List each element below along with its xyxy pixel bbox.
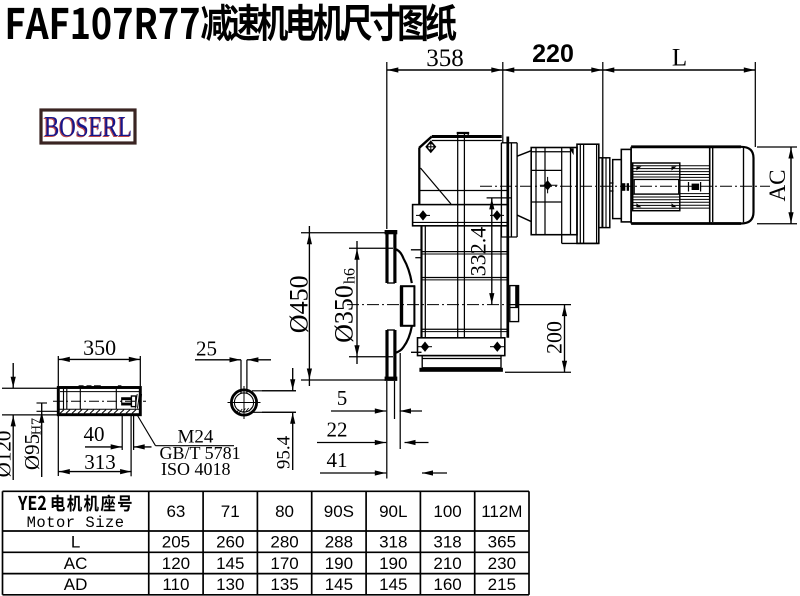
svg-text:25: 25	[196, 337, 217, 361]
svg-text:95.4: 95.4	[273, 435, 294, 469]
svg-text:AC: AC	[765, 170, 790, 202]
svg-text:22: 22	[327, 418, 348, 442]
svg-text:Motor Size: Motor Size	[27, 514, 125, 532]
svg-text:365: 365	[488, 533, 516, 552]
svg-text:280: 280	[270, 533, 298, 552]
svg-text:H7: H7	[30, 418, 45, 435]
svg-text:Ø450: Ø450	[285, 275, 314, 333]
svg-text:90L: 90L	[379, 502, 407, 521]
svg-text:Ø95: Ø95	[20, 434, 44, 470]
svg-text:358: 358	[426, 45, 464, 72]
svg-text:205: 205	[162, 533, 190, 552]
svg-text:112M: 112M	[481, 502, 522, 521]
svg-text:318: 318	[433, 533, 461, 552]
svg-text:350: 350	[83, 335, 116, 360]
svg-text:L: L	[71, 533, 80, 552]
svg-text:145: 145	[216, 554, 244, 573]
svg-text:63: 63	[166, 502, 185, 521]
svg-text:135: 135	[270, 575, 298, 594]
svg-text:318: 318	[379, 533, 407, 552]
svg-text:5: 5	[337, 386, 348, 410]
svg-text:80: 80	[275, 502, 294, 521]
svg-text:145: 145	[325, 575, 353, 594]
svg-text:90S: 90S	[324, 502, 354, 521]
svg-text:313: 313	[84, 450, 116, 474]
svg-text:215: 215	[488, 575, 516, 594]
svg-text:260: 260	[216, 533, 244, 552]
svg-text:AC: AC	[64, 554, 88, 573]
svg-text:41: 41	[327, 448, 348, 472]
svg-text:200: 200	[541, 321, 566, 354]
svg-text:230: 230	[488, 554, 516, 573]
svg-text:BOSERL: BOSERL	[44, 111, 132, 143]
svg-text:210: 210	[433, 554, 461, 573]
svg-text:120: 120	[162, 554, 190, 573]
svg-text:h6: h6	[341, 268, 358, 284]
svg-text:L: L	[672, 45, 687, 72]
svg-text:190: 190	[325, 554, 353, 573]
svg-text:170: 170	[270, 554, 298, 573]
svg-text:130: 130	[216, 575, 244, 594]
svg-text:100: 100	[433, 502, 461, 521]
svg-text:190: 190	[379, 554, 407, 573]
svg-text:145: 145	[379, 575, 407, 594]
svg-text:AD: AD	[64, 575, 88, 594]
svg-text:220: 220	[532, 40, 574, 68]
svg-text:Ø350: Ø350	[329, 285, 358, 343]
svg-text:ISO 4018: ISO 4018	[161, 459, 231, 479]
svg-text:Ø120: Ø120	[0, 431, 15, 478]
svg-text:71: 71	[221, 502, 240, 521]
svg-text:110: 110	[162, 575, 189, 594]
svg-text:160: 160	[433, 575, 461, 594]
svg-text:288: 288	[325, 533, 353, 552]
svg-text:40: 40	[84, 422, 105, 446]
